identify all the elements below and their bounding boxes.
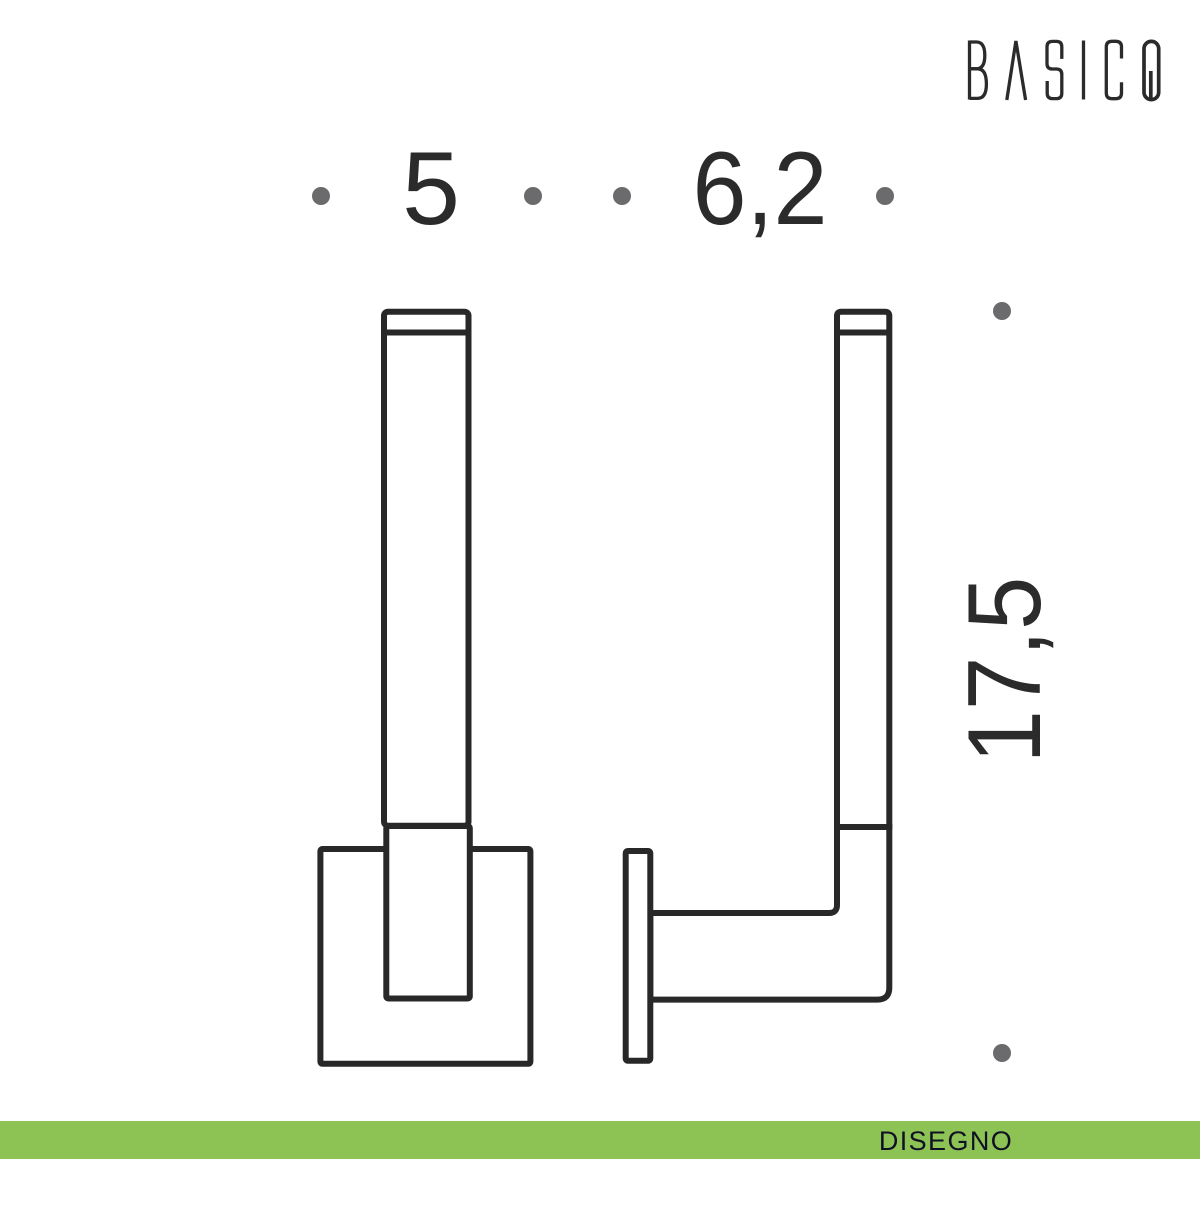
svg-text:17,5: 17,5: [947, 577, 1063, 764]
svg-text:5: 5: [402, 131, 460, 247]
svg-text:DISEGNO: DISEGNO: [879, 1126, 1013, 1156]
svg-text:6,2: 6,2: [693, 131, 828, 247]
